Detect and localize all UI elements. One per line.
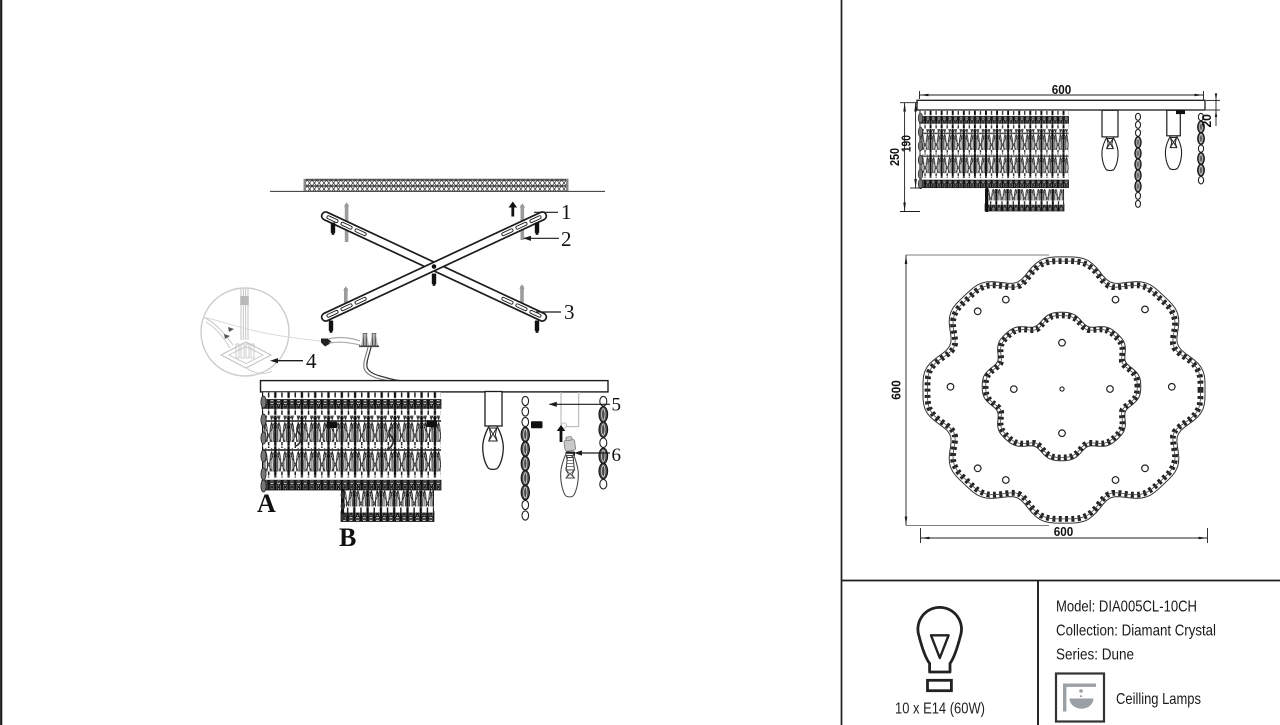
svg-text:20: 20	[1200, 114, 1214, 128]
svg-text:6: 6	[612, 445, 622, 466]
svg-text:Series: Dune: Series: Dune	[1056, 646, 1134, 663]
svg-text:5: 5	[612, 395, 622, 416]
svg-text:600: 600	[889, 380, 903, 400]
svg-text:Collection: Diamant Crystal: Collection: Diamant Crystal	[1056, 623, 1216, 640]
svg-text:10 x E14 (60W): 10 x E14 (60W)	[895, 701, 985, 718]
svg-text:600: 600	[1054, 525, 1074, 539]
svg-text:2: 2	[561, 227, 572, 251]
svg-text:Ceilling Lamps: Ceilling Lamps	[1116, 691, 1201, 708]
svg-text:190: 190	[900, 135, 914, 152]
svg-text:B: B	[339, 523, 356, 552]
svg-text:Model: DIA005CL-10CH: Model: DIA005CL-10CH	[1056, 598, 1197, 615]
svg-text:1: 1	[561, 200, 572, 224]
svg-text:3: 3	[564, 300, 575, 324]
svg-text:A: A	[257, 489, 276, 518]
svg-text:4: 4	[306, 349, 317, 373]
svg-text:600: 600	[1052, 83, 1072, 97]
